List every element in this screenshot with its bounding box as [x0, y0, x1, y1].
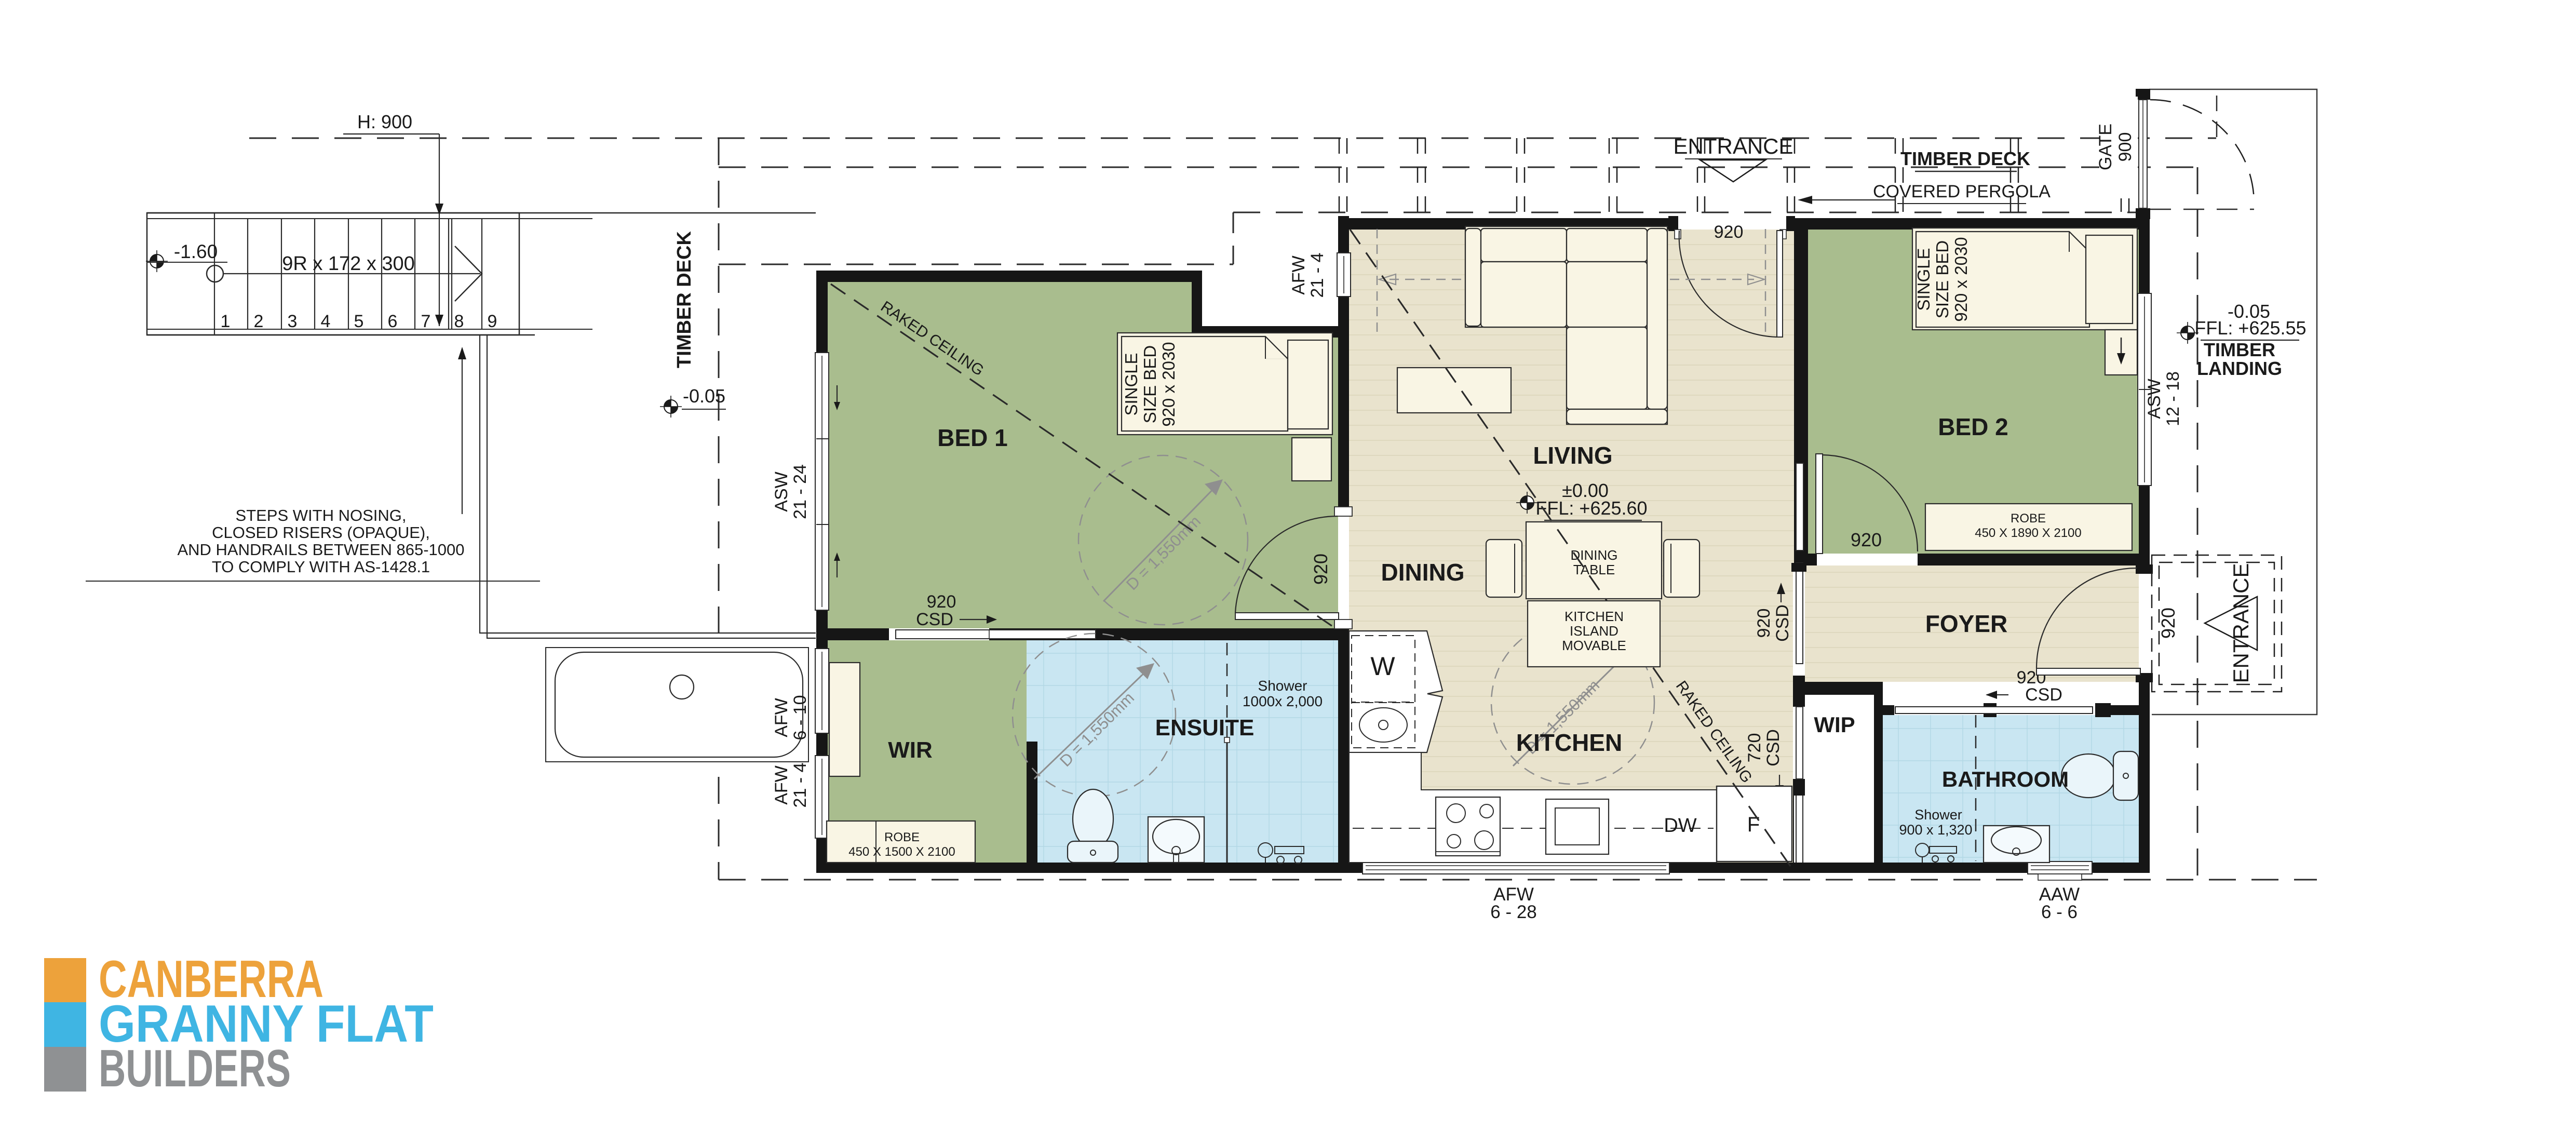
svg-text:FFL: +625.60: FFL: +625.60	[1535, 497, 1647, 519]
svg-text:920 x 2030: 920 x 2030	[1951, 237, 1971, 321]
svg-text:920: 920	[1754, 609, 1774, 638]
svg-text:6 - 6: 6 - 6	[2041, 902, 2078, 922]
svg-text:AFW: AFW	[1289, 255, 1309, 295]
svg-text:Shower: Shower	[1914, 807, 1962, 823]
svg-text:ENSUITE: ENSUITE	[1155, 715, 1255, 740]
svg-text:DW: DW	[1664, 815, 1696, 837]
svg-text:ASW: ASW	[2145, 379, 2164, 419]
svg-text:450 X 1890 X 2100: 450 X 1890 X 2100	[1975, 526, 2082, 540]
svg-text:ENTRANCE: ENTRANCE	[1673, 134, 1793, 158]
svg-text:920: 920	[1714, 222, 1744, 242]
svg-text:21 - 24: 21 - 24	[790, 464, 810, 519]
svg-text:Shower: Shower	[1258, 678, 1307, 694]
svg-text:SINGLE: SINGLE	[1914, 248, 1933, 311]
svg-text:BUILDERS: BUILDERS	[99, 1040, 291, 1098]
svg-text:CSD: CSD	[1773, 604, 1792, 642]
svg-text:BED 2: BED 2	[1938, 413, 2008, 440]
svg-text:ENTRANCE: ENTRANCE	[2229, 563, 2253, 683]
svg-text:AFW: AFW	[772, 765, 791, 805]
svg-text:H: 900: H: 900	[357, 111, 412, 132]
svg-text:KITCHEN: KITCHEN	[1565, 609, 1624, 624]
svg-text:8: 8	[454, 312, 464, 331]
svg-text:BED 1: BED 1	[937, 424, 1007, 451]
svg-text:720: 720	[1745, 733, 1764, 763]
svg-text:21 - 4: 21 - 4	[790, 763, 810, 808]
svg-text:SINGLE: SINGLE	[1122, 353, 1141, 415]
svg-text:TIMBER DECK: TIMBER DECK	[1900, 148, 2030, 169]
svg-text:2: 2	[254, 312, 264, 331]
svg-text:900 x 1,320: 900 x 1,320	[1899, 822, 1972, 838]
svg-text:ASW: ASW	[772, 472, 791, 511]
svg-text:AND HANDRAILS BETWEEN 865-1000: AND HANDRAILS BETWEEN 865-1000	[177, 541, 464, 559]
svg-text:ROBE: ROBE	[2011, 511, 2046, 526]
svg-text:BATHROOM: BATHROOM	[1942, 767, 2069, 791]
svg-text:FFL: +625.55: FFL: +625.55	[2194, 317, 2306, 339]
svg-text:920: 920	[927, 592, 956, 612]
svg-text:FOYER: FOYER	[1925, 610, 2007, 637]
svg-text:7: 7	[421, 312, 431, 331]
svg-text:CSD: CSD	[2025, 685, 2062, 705]
svg-text:CSD: CSD	[1763, 729, 1783, 766]
svg-text:ROBE: ROBE	[884, 830, 920, 844]
svg-text:12 - 18: 12 - 18	[2163, 371, 2183, 426]
svg-text:WIP: WIP	[1814, 712, 1855, 737]
svg-text:DINING: DINING	[1571, 547, 1618, 563]
svg-text:6 - 10: 6 - 10	[790, 695, 810, 740]
svg-text:GATE: GATE	[2096, 124, 2115, 170]
svg-text:MOVABLE: MOVABLE	[1562, 638, 1626, 653]
svg-text:1000x 2,000: 1000x 2,000	[1243, 693, 1323, 709]
svg-text:LIVING: LIVING	[1533, 442, 1612, 469]
svg-text:4: 4	[321, 312, 331, 331]
svg-text:TIMBER: TIMBER	[2204, 339, 2275, 360]
svg-text:AFW: AFW	[772, 698, 791, 737]
svg-text:-1.60: -1.60	[174, 241, 218, 262]
svg-text:CSD: CSD	[916, 610, 953, 629]
svg-text:DINING: DINING	[1381, 559, 1465, 586]
svg-text:F: F	[1747, 813, 1760, 836]
svg-text:920: 920	[1851, 529, 1882, 550]
svg-text:6 - 28: 6 - 28	[1490, 902, 1537, 922]
svg-text:9: 9	[488, 312, 497, 331]
svg-text:STEPS WITH NOSING,: STEPS WITH NOSING,	[236, 506, 407, 524]
svg-text:6: 6	[388, 312, 398, 331]
svg-text:W: W	[1370, 652, 1395, 681]
svg-text:WIR: WIR	[888, 737, 933, 763]
svg-text:TIMBER DECK: TIMBER DECK	[673, 231, 695, 368]
svg-text:LANDING: LANDING	[2197, 358, 2282, 379]
svg-text:-0.05: -0.05	[683, 385, 725, 407]
svg-text:ISLAND: ISLAND	[1570, 623, 1619, 639]
svg-text:CLOSED RISERS (OPAQUE),: CLOSED RISERS (OPAQUE),	[212, 523, 430, 542]
svg-text:21 - 4: 21 - 4	[1307, 253, 1327, 298]
svg-text:920: 920	[2157, 608, 2179, 639]
svg-text:5: 5	[354, 312, 364, 331]
svg-text:SIZE BED: SIZE BED	[1140, 345, 1159, 423]
svg-text:TO COMPLY WITH AS-1428.1: TO COMPLY WITH AS-1428.1	[212, 558, 430, 576]
svg-text:450 X 1500 X 2100: 450 X 1500 X 2100	[848, 845, 955, 859]
svg-text:COVERED PERGOLA: COVERED PERGOLA	[1873, 182, 2051, 201]
svg-text:920 x 2030: 920 x 2030	[1159, 342, 1178, 426]
svg-text:920: 920	[1310, 554, 1331, 585]
svg-text:1: 1	[221, 312, 231, 331]
svg-text:SIZE BED: SIZE BED	[1933, 240, 1952, 318]
svg-text:TABLE: TABLE	[1573, 562, 1615, 577]
svg-text:900: 900	[2115, 132, 2135, 162]
svg-text:KITCHEN: KITCHEN	[1516, 729, 1622, 756]
svg-text:3: 3	[288, 312, 298, 331]
svg-text:9R x 172 x 300: 9R x 172 x 300	[282, 253, 415, 275]
